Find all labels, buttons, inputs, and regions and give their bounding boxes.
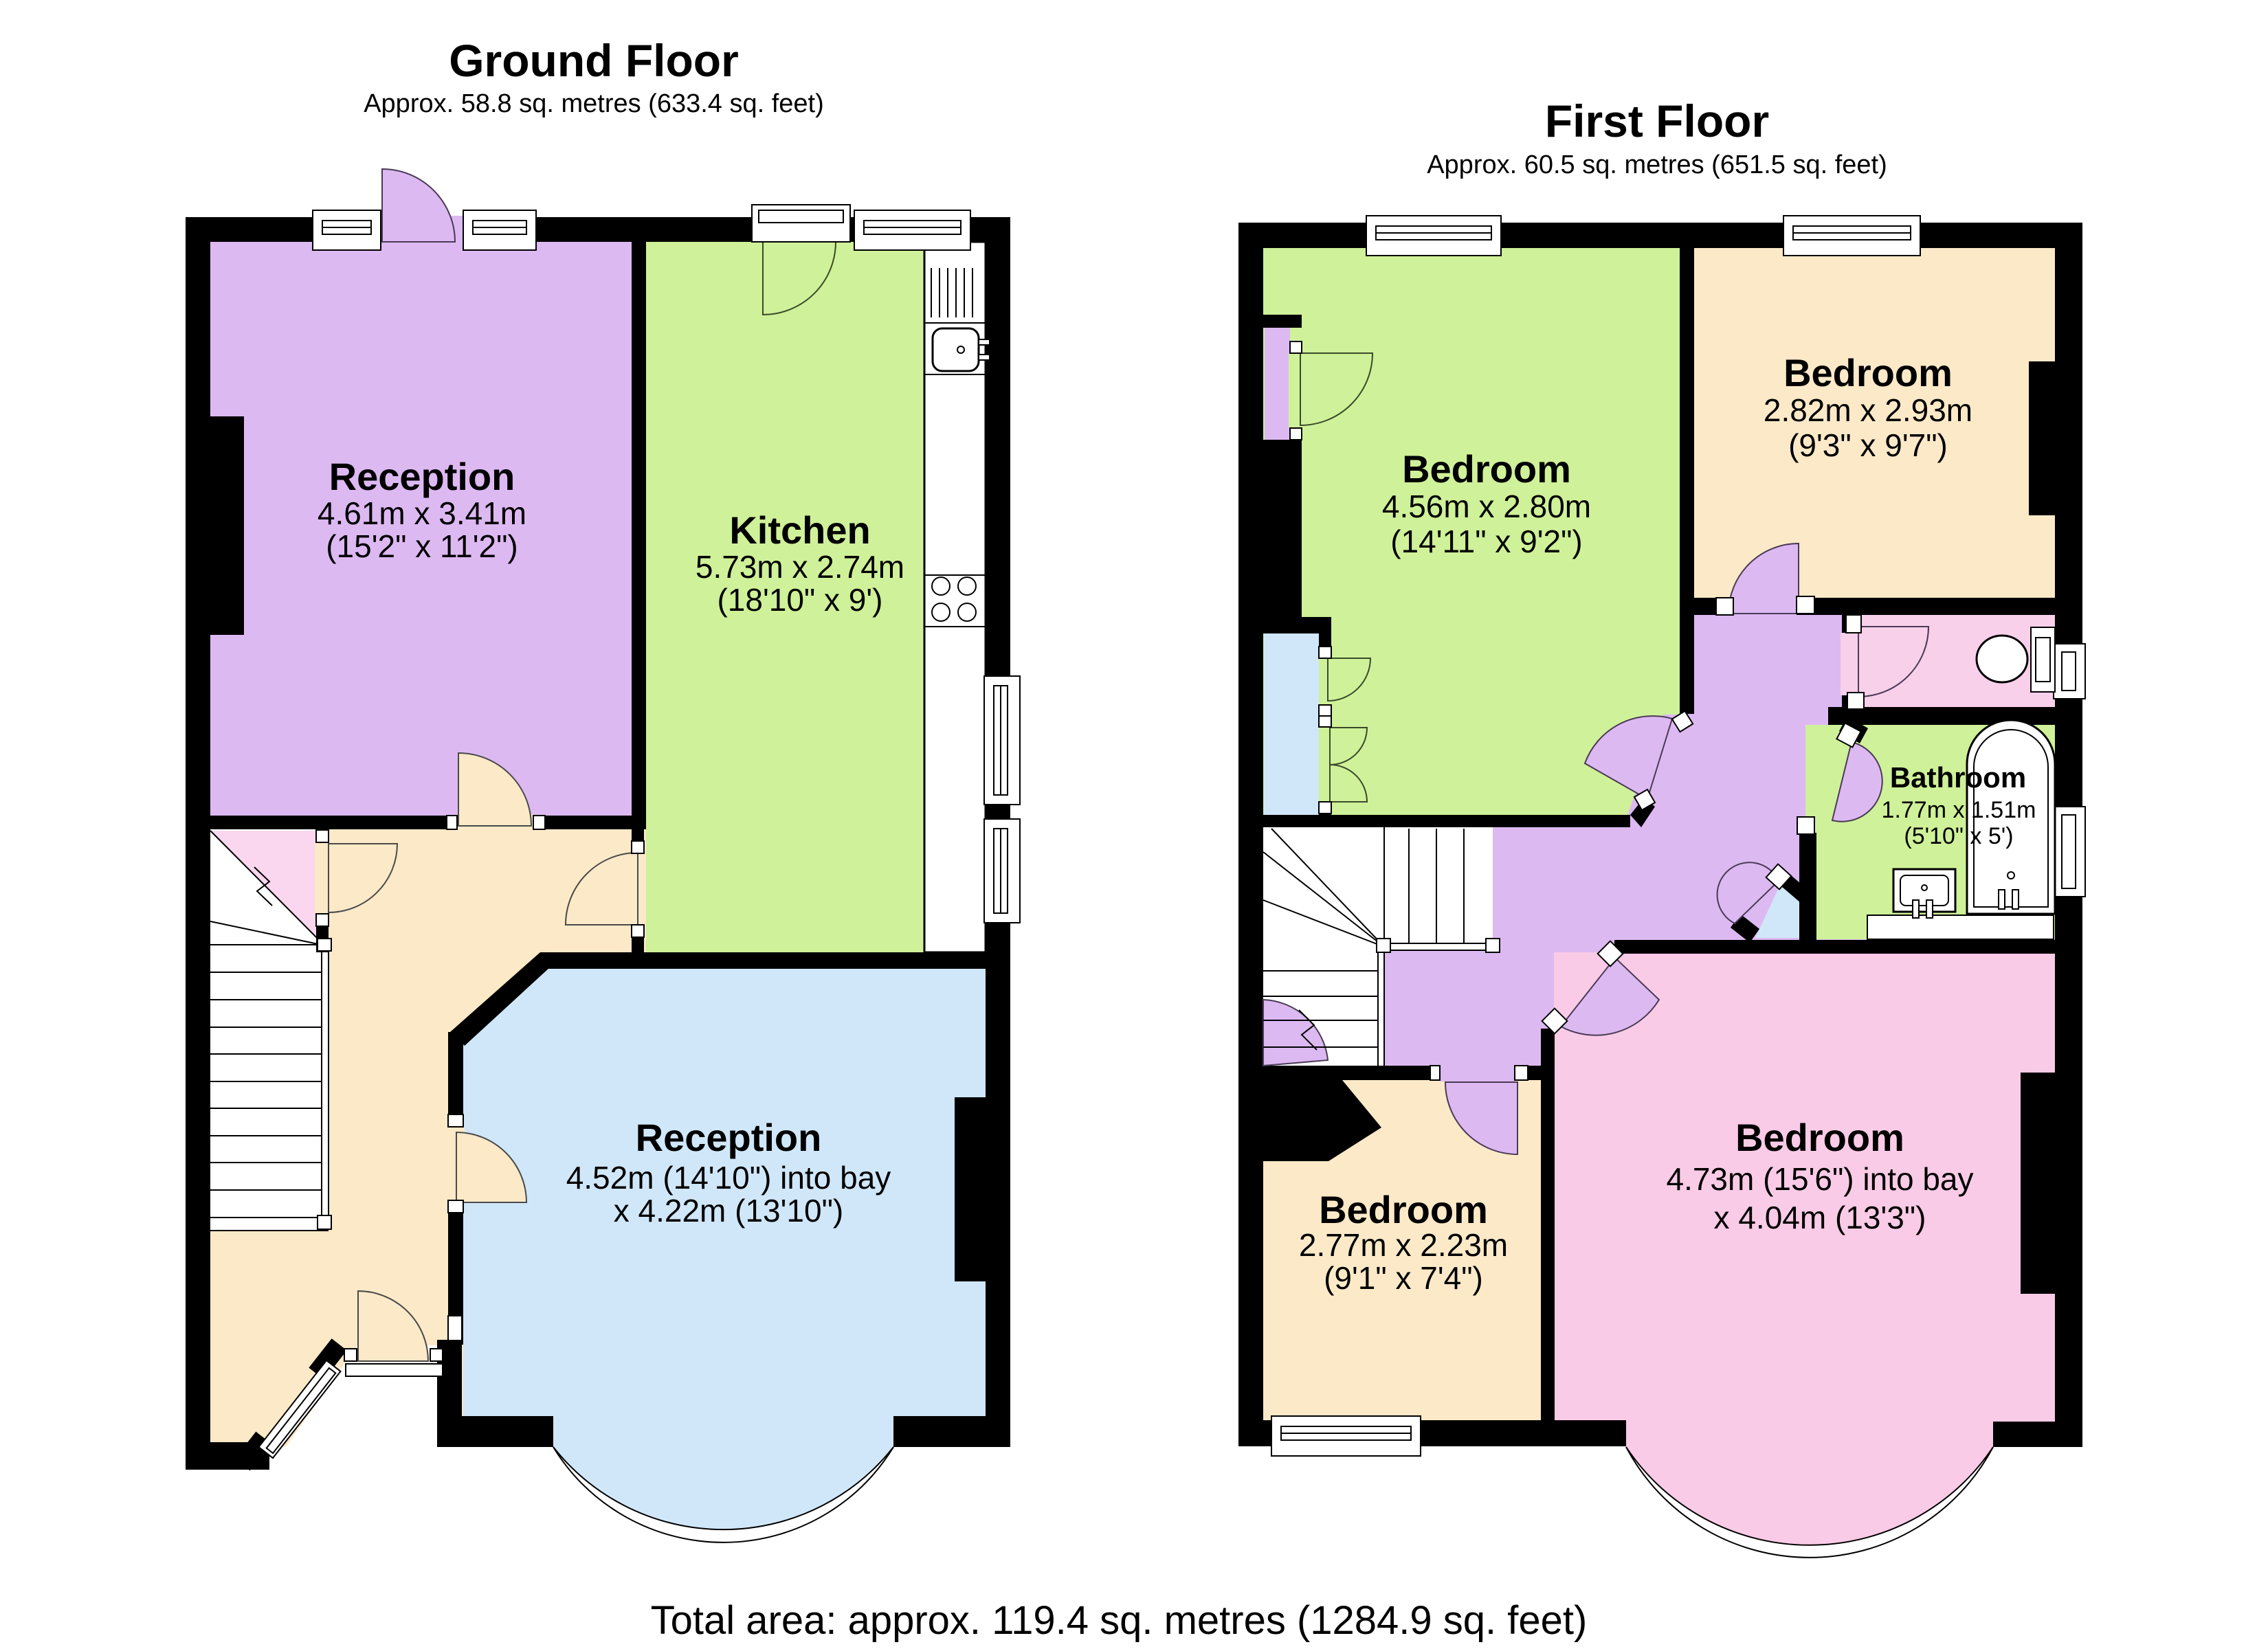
svg-text:(9'1" x 7'4"): (9'1" x 7'4")	[1324, 1260, 1483, 1296]
svg-text:(9'3" x 9'7"): (9'3" x 9'7")	[1788, 427, 1948, 463]
svg-text:x 4.22m (13'10"): x 4.22m (13'10")	[614, 1193, 844, 1229]
svg-text:4.56m x 2.80m: 4.56m x 2.80m	[1382, 489, 1591, 524]
svg-text:Bedroom: Bedroom	[1783, 351, 1953, 394]
svg-text:Bathroom: Bathroom	[1890, 761, 2026, 794]
svg-text:4.61m x 3.41m: 4.61m x 3.41m	[318, 495, 526, 531]
svg-text:Bedroom: Bedroom	[1319, 1188, 1488, 1231]
svg-text:(5'10" x 5'): (5'10" x 5')	[1904, 823, 2013, 849]
svg-text:(15'2" x 11'2"): (15'2" x 11'2")	[326, 528, 518, 564]
svg-text:Total area: approx. 119.4 sq.: Total area: approx. 119.4 sq. metres (12…	[651, 1598, 1588, 1643]
svg-text:Reception: Reception	[636, 1116, 822, 1159]
svg-text:Bedroom: Bedroom	[1735, 1116, 1904, 1159]
svg-text:2.82m x 2.93m: 2.82m x 2.93m	[1764, 392, 1972, 428]
svg-text:2.77m x 2.23m: 2.77m x 2.23m	[1299, 1227, 1508, 1263]
svg-text:(14'11" x 9'2"): (14'11" x 9'2")	[1390, 524, 1583, 559]
svg-text:1.77m x 1.51m: 1.77m x 1.51m	[1882, 797, 2036, 823]
svg-text:4.52m (14'10") into bay: 4.52m (14'10") into bay	[566, 1160, 891, 1196]
svg-text:Kitchen: Kitchen	[729, 508, 870, 552]
svg-text:Reception: Reception	[329, 455, 515, 498]
svg-text:4.73m (15'6") into bay: 4.73m (15'6") into bay	[1666, 1161, 1973, 1197]
svg-text:Bedroom: Bedroom	[1402, 447, 1571, 491]
svg-text:(18'10" x 9'): (18'10" x 9')	[717, 582, 882, 618]
svg-text:Ground Floor: Ground Floor	[449, 35, 739, 86]
svg-text:Approx. 60.5 sq. metres (651.5: Approx. 60.5 sq. metres (651.5 sq. feet)	[1427, 150, 1887, 179]
svg-text:5.73m x 2.74m: 5.73m x 2.74m	[696, 549, 904, 585]
svg-text:First Floor: First Floor	[1545, 96, 1769, 146]
svg-text:x 4.04m (13'3"): x 4.04m (13'3")	[1714, 1200, 1926, 1235]
svg-text:Approx. 58.8 sq. metres (633.4: Approx. 58.8 sq. metres (633.4 sq. feet)	[364, 89, 824, 118]
